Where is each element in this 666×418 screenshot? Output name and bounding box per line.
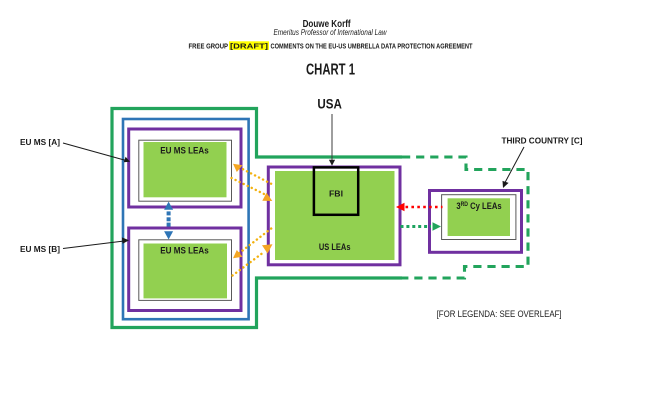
svg-text:FBI: FBI [329, 189, 343, 199]
svg-text:CHART 1: CHART 1 [306, 62, 355, 79]
svg-text:US LEAs: US LEAs [319, 242, 351, 252]
svg-text:Emeritus Professor of Internat: Emeritus Professor of International Law [274, 28, 388, 37]
svg-text:EU MS LEAs: EU MS LEAs [160, 245, 209, 255]
svg-text:THIRD COUNTRY [C]: THIRD COUNTRY [C] [502, 136, 583, 146]
svg-text:EU MS [B]: EU MS [B] [20, 244, 60, 254]
svg-text:[FOR LEGENDA: SEE OVERLEAF]: [FOR LEGENDA: SEE OVERLEAF] [437, 309, 562, 319]
svg-text:USA: USA [317, 96, 342, 112]
svg-text:EU MS [A]: EU MS [A] [20, 137, 60, 147]
svg-text:FREE GROUP: FREE GROUP [189, 41, 229, 50]
svg-text:EU MS LEAs: EU MS LEAs [160, 145, 209, 155]
svg-text:[DRAFT]: [DRAFT] [230, 41, 269, 50]
svg-text:COMMENTS ON THE EU-US UMBRELLA: COMMENTS ON THE EU-US UMBRELLA DATA PROT… [271, 41, 473, 50]
